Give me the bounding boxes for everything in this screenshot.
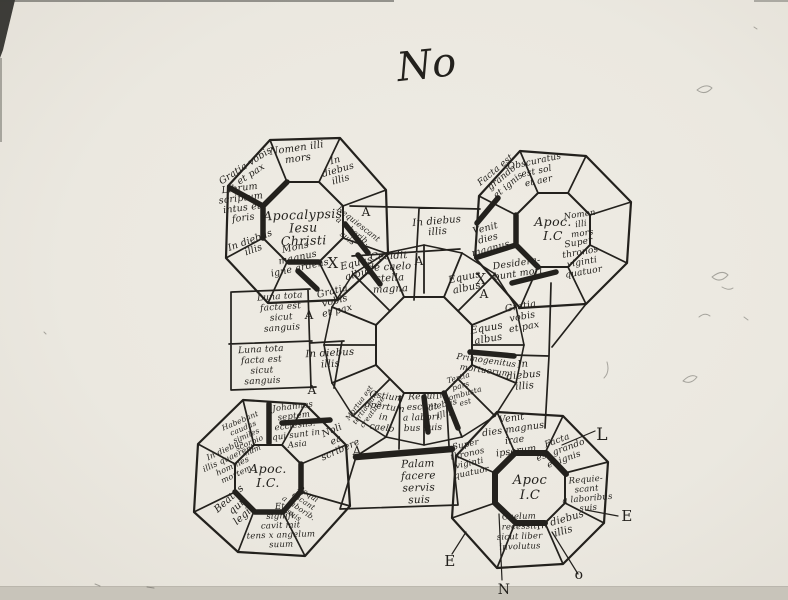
diagram-label: Luna totafacta estsicutsanguis (237, 344, 286, 388)
letter-a: A (479, 287, 489, 301)
diagram-label: Luna totafacta estsicutsanguis (256, 290, 305, 335)
rosette-title-bottom-left: Apoc.I.C. (248, 461, 287, 490)
diagram-label: Nomen illimors (268, 139, 326, 168)
page: NoNomen illimorsGratia vobiset paxIndieb… (0, 0, 788, 600)
diagram-label: Caelumrecessitsicut liberinvolutus (496, 511, 544, 553)
letter-a: A (361, 205, 371, 219)
x-mark: X (476, 270, 487, 288)
scan-bottom-band (0, 587, 788, 600)
rosette-title-bottom-right: ApocI.C (512, 473, 548, 503)
diagram-label: Gratiavobiset pax (504, 298, 541, 335)
bottom-heavy-bar (356, 449, 452, 457)
diagram-label: Venitdiesmagnus (465, 218, 511, 259)
diagram-label: Palamfacereservissuis (399, 457, 436, 506)
scanned-page-body: { "page": { "description": "Hand-drawn s… (0, 0, 788, 600)
diagram-label: Ceciditde caelostellamagna (367, 250, 413, 296)
margin-letter: E (621, 507, 632, 525)
letter-a: A (352, 444, 362, 458)
scan-left-edge (0, 58, 2, 142)
diagram-label: Librumscriptumintus etforis (217, 180, 266, 226)
page-number-mark: No (394, 39, 459, 91)
margin-letter: E (444, 552, 455, 570)
diagram-canvas: NoNomen illimorsGratia vobiset paxIndieb… (0, 0, 788, 600)
letter-a: A (304, 308, 314, 322)
scan-top-edge (0, 0, 394, 2)
diagram-label: Equusalbus (469, 320, 506, 348)
scan-corner-mark (0, 0, 15, 58)
diagram-label: Equusalbus (338, 254, 376, 284)
diagram-label: In diebusillis (411, 214, 463, 240)
diagram-label: Superthronosvigintiquatuor (447, 436, 490, 481)
diagram-label: Superthronosvigintiquatuor (559, 235, 603, 281)
margin-letter: o (575, 567, 584, 583)
letter-a: A (307, 383, 317, 397)
diagram-label: Indiebusillis (318, 151, 358, 190)
page-showthrough-squiggles (44, 27, 757, 588)
diagram-label: In diebusillis (304, 347, 355, 372)
scan-top-edge-right (754, 0, 788, 2)
scan-artifacts (0, 0, 788, 600)
margin-letter: L (596, 425, 608, 445)
margin-letter: N (498, 582, 510, 598)
x-mark: X (328, 254, 339, 272)
letter-a: A (414, 254, 424, 268)
